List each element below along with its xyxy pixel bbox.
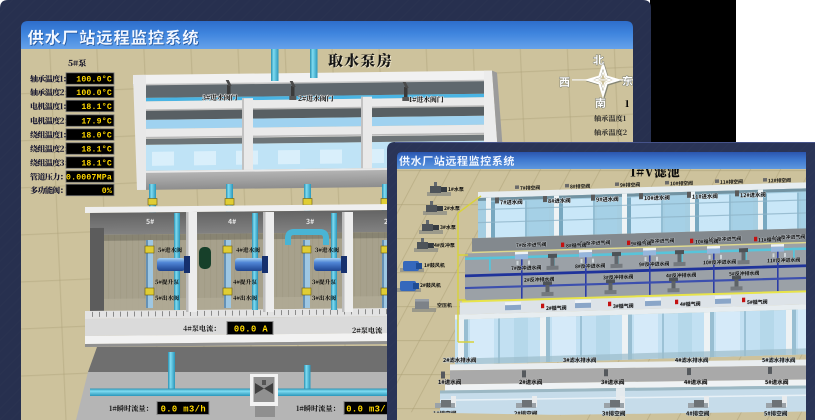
- svg-text:0%: 0%: [102, 187, 112, 196]
- svg-text:18.0°C: 18.0°C: [81, 132, 112, 141]
- svg-text:18.1°C: 18.1°C: [81, 146, 112, 155]
- svg-text:100.0°C: 100.0°C: [76, 76, 112, 85]
- svg-text:00.0 A: 00.0 A: [234, 325, 268, 335]
- svg-text:17.9°C: 17.9°C: [81, 118, 112, 127]
- svg-text:0.0 m3/: 0.0 m3/: [346, 405, 386, 415]
- svg-text:100.0°C: 100.0°C: [76, 89, 112, 98]
- svg-text:18.1°C: 18.1°C: [81, 103, 112, 112]
- svg-text:18.1°C: 18.1°C: [81, 160, 112, 169]
- svg-text:0.0007MPa: 0.0007MPa: [66, 174, 112, 183]
- svg-text:0.0 m3/h: 0.0 m3/h: [161, 405, 206, 415]
